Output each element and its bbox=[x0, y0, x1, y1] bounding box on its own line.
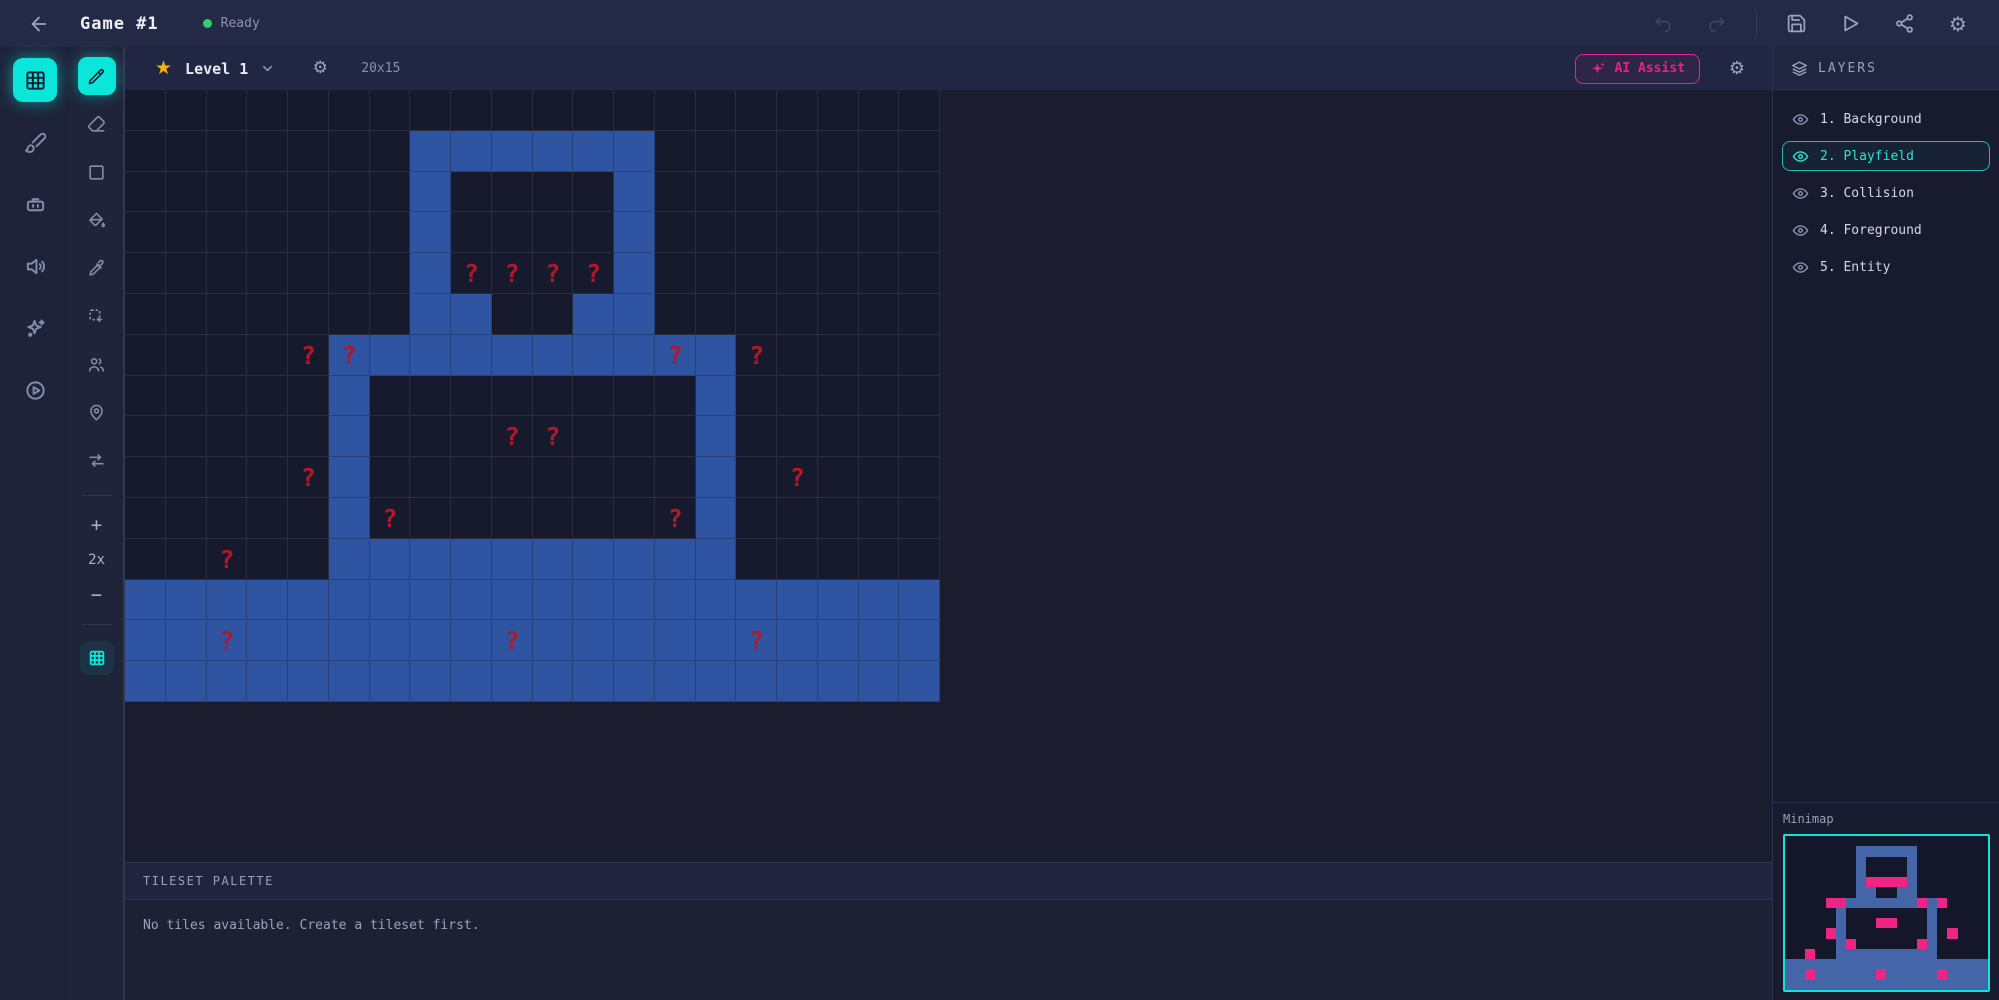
tile-cell[interactable] bbox=[410, 172, 451, 213]
tile-cell[interactable] bbox=[777, 661, 818, 702]
tile-cell[interactable] bbox=[696, 661, 737, 702]
tile-cell[interactable] bbox=[736, 661, 777, 702]
tile-cell[interactable] bbox=[655, 90, 696, 131]
tile-cell[interactable] bbox=[777, 620, 818, 661]
tile-cell[interactable] bbox=[859, 90, 900, 131]
tile-cell[interactable] bbox=[655, 457, 696, 498]
tile-cell[interactable] bbox=[329, 376, 370, 417]
tile-cell[interactable] bbox=[125, 90, 166, 131]
tile-cell[interactable] bbox=[573, 90, 614, 131]
tile-cell[interactable] bbox=[859, 294, 900, 335]
tile-cell[interactable] bbox=[329, 294, 370, 335]
tile-cell[interactable]: ? bbox=[655, 335, 696, 376]
tile-cell[interactable] bbox=[655, 416, 696, 457]
tile-cell[interactable] bbox=[655, 294, 696, 335]
tile-cell[interactable] bbox=[614, 620, 655, 661]
tile-cell[interactable] bbox=[125, 335, 166, 376]
tile-cell[interactable] bbox=[492, 335, 533, 376]
tile-cell[interactable] bbox=[125, 131, 166, 172]
tile-cell[interactable] bbox=[573, 416, 614, 457]
tile-cell[interactable] bbox=[859, 212, 900, 253]
tile-cell[interactable] bbox=[247, 498, 288, 539]
settings-button[interactable]: ⚙ bbox=[1943, 9, 1973, 39]
tile-cell[interactable] bbox=[329, 580, 370, 621]
tile-cell[interactable] bbox=[247, 580, 288, 621]
tile-cell[interactable] bbox=[899, 253, 940, 294]
tile-cell[interactable] bbox=[859, 661, 900, 702]
tile-cell[interactable] bbox=[736, 212, 777, 253]
tile-cell[interactable] bbox=[859, 457, 900, 498]
tile-cell[interactable] bbox=[777, 172, 818, 213]
tile-cell[interactable] bbox=[288, 212, 329, 253]
tile-cell[interactable] bbox=[899, 580, 940, 621]
eye-icon[interactable] bbox=[1792, 148, 1809, 165]
eye-icon[interactable] bbox=[1792, 259, 1809, 276]
tile-cell[interactable] bbox=[207, 416, 248, 457]
tile-cell[interactable] bbox=[859, 172, 900, 213]
tile-cell[interactable] bbox=[573, 294, 614, 335]
tile-cell[interactable]: ? bbox=[533, 416, 574, 457]
editor-settings-button[interactable]: ⚙ bbox=[1722, 54, 1752, 84]
tile-cell[interactable] bbox=[859, 620, 900, 661]
rail-item-paint-editor[interactable] bbox=[13, 120, 57, 164]
tool-marquee-select[interactable] bbox=[78, 297, 116, 335]
tile-cell[interactable] bbox=[696, 457, 737, 498]
tile-cell[interactable] bbox=[370, 539, 411, 580]
tile-cell[interactable] bbox=[247, 90, 288, 131]
tool-grid-toggle[interactable] bbox=[80, 641, 114, 675]
tile-cell[interactable] bbox=[533, 376, 574, 417]
tile-cell[interactable] bbox=[533, 539, 574, 580]
tile-cell[interactable] bbox=[207, 212, 248, 253]
tile-cell[interactable]: ? bbox=[451, 253, 492, 294]
tile-cell[interactable] bbox=[410, 212, 451, 253]
tile-cell[interactable] bbox=[655, 131, 696, 172]
tile-cell[interactable] bbox=[288, 172, 329, 213]
tile-cell[interactable] bbox=[696, 416, 737, 457]
tile-cell[interactable] bbox=[736, 416, 777, 457]
tile-cell[interactable] bbox=[370, 376, 411, 417]
tile-cell[interactable] bbox=[207, 335, 248, 376]
tile-cell[interactable] bbox=[288, 580, 329, 621]
tile-cell[interactable] bbox=[410, 620, 451, 661]
tile-cell[interactable] bbox=[247, 457, 288, 498]
tile-cell[interactable] bbox=[288, 253, 329, 294]
tile-cell[interactable] bbox=[492, 212, 533, 253]
tile-cell[interactable] bbox=[451, 416, 492, 457]
tile-cell[interactable]: ? bbox=[573, 253, 614, 294]
tile-cell[interactable] bbox=[696, 376, 737, 417]
tile-cell[interactable] bbox=[818, 131, 859, 172]
save-button[interactable] bbox=[1781, 9, 1811, 39]
tile-cell[interactable] bbox=[533, 294, 574, 335]
tile-cell[interactable] bbox=[736, 294, 777, 335]
tile-cell[interactable] bbox=[451, 212, 492, 253]
tile-cell[interactable] bbox=[533, 620, 574, 661]
tile-cell[interactable] bbox=[207, 498, 248, 539]
tool-collaborators[interactable] bbox=[78, 345, 116, 383]
tile-cell[interactable] bbox=[655, 212, 696, 253]
tile-cell[interactable] bbox=[247, 539, 288, 580]
tile-cell[interactable] bbox=[777, 90, 818, 131]
tile-cell[interactable] bbox=[696, 131, 737, 172]
tile-cell[interactable] bbox=[818, 580, 859, 621]
tile-cell[interactable] bbox=[573, 620, 614, 661]
tile-cell[interactable] bbox=[329, 416, 370, 457]
tile-cell[interactable] bbox=[777, 294, 818, 335]
share-button[interactable] bbox=[1889, 9, 1919, 39]
tile-cell[interactable] bbox=[818, 498, 859, 539]
tile-cell[interactable] bbox=[777, 335, 818, 376]
tile-cell[interactable] bbox=[696, 335, 737, 376]
tile-cell[interactable] bbox=[533, 172, 574, 213]
tile-cell[interactable] bbox=[696, 172, 737, 213]
tile-cell[interactable] bbox=[207, 90, 248, 131]
tile-cell[interactable] bbox=[370, 620, 411, 661]
tile-cell[interactable] bbox=[247, 172, 288, 213]
tile-cell[interactable] bbox=[533, 335, 574, 376]
tile-cell[interactable] bbox=[736, 90, 777, 131]
tile-cell[interactable] bbox=[410, 580, 451, 621]
rail-item-audio-editor[interactable] bbox=[13, 244, 57, 288]
tile-cell[interactable] bbox=[899, 90, 940, 131]
tile-cell[interactable] bbox=[166, 661, 207, 702]
tile-cell[interactable] bbox=[899, 457, 940, 498]
tile-cell[interactable] bbox=[614, 457, 655, 498]
tile-cell[interactable] bbox=[736, 253, 777, 294]
tile-cell[interactable] bbox=[451, 620, 492, 661]
tile-cell[interactable] bbox=[655, 376, 696, 417]
tile-cell[interactable] bbox=[533, 90, 574, 131]
tile-cell[interactable] bbox=[247, 335, 288, 376]
tile-cell[interactable] bbox=[777, 539, 818, 580]
ai-assist-button[interactable]: AI Assist bbox=[1575, 54, 1700, 84]
tile-cell[interactable] bbox=[451, 294, 492, 335]
tool-eraser[interactable] bbox=[78, 105, 116, 143]
tile-cell[interactable] bbox=[329, 90, 370, 131]
tile-cell[interactable] bbox=[614, 90, 655, 131]
tile-cell[interactable] bbox=[777, 376, 818, 417]
tool-swap-layers[interactable] bbox=[78, 441, 116, 479]
tile-cell[interactable] bbox=[166, 131, 207, 172]
tile-cell[interactable] bbox=[207, 580, 248, 621]
tile-cell[interactable] bbox=[125, 212, 166, 253]
tile-cell[interactable] bbox=[207, 661, 248, 702]
tile-cell[interactable] bbox=[899, 376, 940, 417]
tile-cell[interactable] bbox=[818, 172, 859, 213]
tile-cell[interactable]: ? bbox=[492, 620, 533, 661]
tile-cell[interactable] bbox=[736, 131, 777, 172]
tile-cell[interactable] bbox=[492, 580, 533, 621]
tile-cell[interactable] bbox=[736, 172, 777, 213]
tile-cell[interactable]: ? bbox=[736, 335, 777, 376]
tile-cell[interactable] bbox=[370, 131, 411, 172]
tile-cell[interactable] bbox=[899, 172, 940, 213]
tile-cell[interactable] bbox=[329, 212, 370, 253]
level-selector[interactable]: Level 1 bbox=[185, 60, 248, 78]
tile-cell[interactable] bbox=[370, 335, 411, 376]
tile-cell[interactable] bbox=[614, 172, 655, 213]
tile-cell[interactable] bbox=[410, 90, 451, 131]
tile-cell[interactable] bbox=[614, 416, 655, 457]
tile-cell[interactable] bbox=[410, 416, 451, 457]
tile-cell[interactable] bbox=[614, 253, 655, 294]
tile-cell[interactable] bbox=[573, 539, 614, 580]
tile-cell[interactable] bbox=[247, 376, 288, 417]
tile-cell[interactable] bbox=[288, 661, 329, 702]
tile-cell[interactable] bbox=[370, 457, 411, 498]
tile-cell[interactable] bbox=[818, 416, 859, 457]
tile-cell[interactable] bbox=[288, 376, 329, 417]
tile-cell[interactable] bbox=[370, 661, 411, 702]
tile-cell[interactable] bbox=[492, 376, 533, 417]
tile-cell[interactable] bbox=[696, 253, 737, 294]
tile-cell[interactable] bbox=[859, 376, 900, 417]
tile-cell[interactable] bbox=[125, 620, 166, 661]
tile-cell[interactable] bbox=[125, 457, 166, 498]
tile-cell[interactable] bbox=[288, 131, 329, 172]
tile-cell[interactable] bbox=[696, 580, 737, 621]
tile-cell[interactable] bbox=[777, 416, 818, 457]
tile-cell[interactable] bbox=[125, 253, 166, 294]
tile-cell[interactable] bbox=[614, 212, 655, 253]
tile-cell[interactable] bbox=[818, 253, 859, 294]
tile-cell[interactable] bbox=[410, 376, 451, 417]
tile-cell[interactable] bbox=[818, 212, 859, 253]
tile-cell[interactable] bbox=[655, 580, 696, 621]
tile-cell[interactable] bbox=[696, 212, 737, 253]
tile-cell[interactable] bbox=[125, 416, 166, 457]
tile-cell[interactable] bbox=[899, 416, 940, 457]
tile-cell[interactable] bbox=[736, 539, 777, 580]
tile-cell[interactable] bbox=[288, 294, 329, 335]
tile-cell[interactable] bbox=[818, 457, 859, 498]
chevron-down-icon[interactable] bbox=[260, 61, 275, 76]
tile-cell[interactable] bbox=[451, 457, 492, 498]
tile-cell[interactable] bbox=[166, 335, 207, 376]
tile-cell[interactable] bbox=[899, 212, 940, 253]
tile-cell[interactable] bbox=[166, 172, 207, 213]
tile-cell[interactable] bbox=[614, 580, 655, 621]
tile-cell[interactable] bbox=[451, 498, 492, 539]
tile-cell[interactable]: ? bbox=[329, 335, 370, 376]
eye-icon[interactable] bbox=[1792, 111, 1809, 128]
tile-cell[interactable] bbox=[451, 376, 492, 417]
tile-grid[interactable]: ?????????????????? bbox=[125, 90, 940, 702]
tile-cell[interactable] bbox=[125, 498, 166, 539]
tile-cell[interactable] bbox=[573, 131, 614, 172]
tile-cell[interactable]: ? bbox=[207, 620, 248, 661]
tile-cell[interactable] bbox=[329, 253, 370, 294]
tile-cell[interactable] bbox=[370, 416, 411, 457]
tile-cell[interactable] bbox=[696, 90, 737, 131]
rail-item-bot-assistant[interactable] bbox=[13, 182, 57, 226]
tile-cell[interactable] bbox=[818, 294, 859, 335]
tile-cell[interactable] bbox=[207, 253, 248, 294]
tile-cell[interactable] bbox=[899, 661, 940, 702]
tile-cell[interactable] bbox=[573, 172, 614, 213]
tile-cell[interactable] bbox=[614, 498, 655, 539]
tile-cell[interactable] bbox=[655, 620, 696, 661]
tile-cell[interactable] bbox=[288, 498, 329, 539]
tile-cell[interactable] bbox=[329, 457, 370, 498]
tile-cell[interactable] bbox=[288, 416, 329, 457]
tile-cell[interactable] bbox=[533, 131, 574, 172]
tile-cell[interactable] bbox=[125, 172, 166, 213]
tile-cell[interactable]: ? bbox=[288, 335, 329, 376]
tile-cell[interactable] bbox=[166, 212, 207, 253]
tile-cell[interactable] bbox=[492, 661, 533, 702]
tile-cell[interactable]: ? bbox=[777, 457, 818, 498]
tile-cell[interactable] bbox=[573, 498, 614, 539]
tile-cell[interactable] bbox=[696, 539, 737, 580]
layer-item-4[interactable]: 4. Foreground bbox=[1782, 215, 1990, 245]
tile-cell[interactable]: ? bbox=[492, 416, 533, 457]
tile-cell[interactable] bbox=[859, 253, 900, 294]
tile-cell[interactable] bbox=[696, 498, 737, 539]
tile-cell[interactable] bbox=[777, 498, 818, 539]
tile-cell[interactable] bbox=[736, 580, 777, 621]
tile-cell[interactable]: ? bbox=[370, 498, 411, 539]
tile-cell[interactable] bbox=[247, 620, 288, 661]
tile-cell[interactable] bbox=[818, 90, 859, 131]
tile-cell[interactable] bbox=[614, 131, 655, 172]
eye-icon[interactable] bbox=[1792, 185, 1809, 202]
tile-cell[interactable] bbox=[125, 376, 166, 417]
zoom-in-button[interactable]: + bbox=[78, 512, 116, 538]
tile-cell[interactable] bbox=[166, 253, 207, 294]
tile-cell[interactable] bbox=[410, 294, 451, 335]
tile-cell[interactable] bbox=[451, 661, 492, 702]
tile-cell[interactable] bbox=[492, 172, 533, 213]
tile-cell[interactable] bbox=[410, 457, 451, 498]
tile-cell[interactable]: ? bbox=[655, 498, 696, 539]
tile-cell[interactable] bbox=[899, 131, 940, 172]
tile-cell[interactable] bbox=[451, 335, 492, 376]
tile-cell[interactable] bbox=[533, 457, 574, 498]
tile-cell[interactable]: ? bbox=[736, 620, 777, 661]
back-button[interactable] bbox=[24, 9, 54, 39]
layer-item-5[interactable]: 5. Entity bbox=[1782, 252, 1990, 282]
zoom-out-button[interactable]: − bbox=[78, 582, 116, 608]
tile-cell[interactable] bbox=[533, 212, 574, 253]
tile-cell[interactable] bbox=[451, 90, 492, 131]
tile-cell[interactable] bbox=[207, 172, 248, 213]
tool-eyedropper[interactable] bbox=[78, 249, 116, 287]
tile-cell[interactable] bbox=[859, 416, 900, 457]
tile-cell[interactable] bbox=[247, 294, 288, 335]
tile-cell[interactable] bbox=[777, 253, 818, 294]
tile-cell[interactable] bbox=[859, 539, 900, 580]
tile-cell[interactable] bbox=[370, 212, 411, 253]
tile-cell[interactable] bbox=[492, 90, 533, 131]
tile-cell[interactable] bbox=[492, 498, 533, 539]
tile-cell[interactable] bbox=[655, 661, 696, 702]
tile-cell[interactable] bbox=[614, 335, 655, 376]
tile-cell[interactable] bbox=[125, 661, 166, 702]
rail-item-preview-player[interactable] bbox=[13, 368, 57, 412]
tile-cell[interactable] bbox=[818, 620, 859, 661]
tile-cell[interactable] bbox=[288, 90, 329, 131]
tile-cell[interactable] bbox=[696, 620, 737, 661]
tile-cell[interactable] bbox=[329, 661, 370, 702]
tile-cell[interactable] bbox=[370, 294, 411, 335]
tile-cell[interactable] bbox=[166, 90, 207, 131]
tile-cell[interactable] bbox=[492, 457, 533, 498]
tile-cell[interactable] bbox=[492, 294, 533, 335]
tile-cell[interactable] bbox=[370, 90, 411, 131]
layer-item-1[interactable]: 1. Background bbox=[1782, 104, 1990, 134]
tile-cell[interactable] bbox=[818, 661, 859, 702]
tile-cell[interactable] bbox=[899, 620, 940, 661]
tile-cell[interactable] bbox=[329, 539, 370, 580]
tool-rectangle[interactable] bbox=[78, 153, 116, 191]
tile-cell[interactable] bbox=[655, 172, 696, 213]
tile-cell[interactable] bbox=[696, 294, 737, 335]
tile-cell[interactable] bbox=[777, 212, 818, 253]
tile-cell[interactable] bbox=[370, 172, 411, 213]
tile-cell[interactable] bbox=[125, 580, 166, 621]
tile-cell[interactable] bbox=[247, 661, 288, 702]
level-settings-button[interactable]: ⚙ bbox=[305, 54, 335, 84]
tile-cell[interactable] bbox=[247, 416, 288, 457]
tile-cell[interactable] bbox=[451, 172, 492, 213]
tile-cell[interactable] bbox=[614, 539, 655, 580]
tile-cell[interactable] bbox=[410, 335, 451, 376]
tile-cell[interactable] bbox=[736, 498, 777, 539]
tile-cell[interactable] bbox=[329, 131, 370, 172]
tile-cell[interactable] bbox=[451, 539, 492, 580]
tile-cell[interactable] bbox=[492, 131, 533, 172]
tile-cell[interactable] bbox=[410, 661, 451, 702]
tile-cell[interactable] bbox=[859, 335, 900, 376]
tile-cell[interactable] bbox=[533, 498, 574, 539]
tile-cell[interactable] bbox=[166, 294, 207, 335]
tile-cell[interactable] bbox=[573, 335, 614, 376]
layer-item-2[interactable]: 2. Playfield bbox=[1782, 141, 1990, 171]
tile-cell[interactable] bbox=[818, 335, 859, 376]
tile-cell[interactable] bbox=[329, 620, 370, 661]
tile-cell[interactable] bbox=[614, 294, 655, 335]
tile-cell[interactable] bbox=[573, 376, 614, 417]
tile-cell[interactable] bbox=[573, 580, 614, 621]
tile-cell[interactable] bbox=[818, 539, 859, 580]
tile-cell[interactable] bbox=[818, 376, 859, 417]
tile-cell[interactable] bbox=[166, 376, 207, 417]
tile-cell[interactable] bbox=[207, 376, 248, 417]
tile-cell[interactable] bbox=[166, 539, 207, 580]
layer-item-3[interactable]: 3. Collision bbox=[1782, 178, 1990, 208]
tile-cell[interactable] bbox=[859, 580, 900, 621]
tile-cell[interactable] bbox=[288, 539, 329, 580]
tile-cell[interactable] bbox=[288, 620, 329, 661]
tile-cell[interactable] bbox=[736, 376, 777, 417]
tile-cell[interactable] bbox=[573, 661, 614, 702]
eye-icon[interactable] bbox=[1792, 222, 1809, 239]
tile-cell[interactable] bbox=[370, 253, 411, 294]
tile-cell[interactable] bbox=[614, 661, 655, 702]
tile-cell[interactable] bbox=[207, 457, 248, 498]
tool-map-pin[interactable] bbox=[78, 393, 116, 431]
tile-cell[interactable] bbox=[777, 131, 818, 172]
tile-cell[interactable] bbox=[451, 580, 492, 621]
tile-cell[interactable]: ? bbox=[533, 253, 574, 294]
tile-cell[interactable] bbox=[410, 253, 451, 294]
tile-cell[interactable] bbox=[492, 539, 533, 580]
tile-cell[interactable] bbox=[533, 580, 574, 621]
tile-cell[interactable] bbox=[410, 131, 451, 172]
rail-item-effects-editor[interactable] bbox=[13, 306, 57, 350]
